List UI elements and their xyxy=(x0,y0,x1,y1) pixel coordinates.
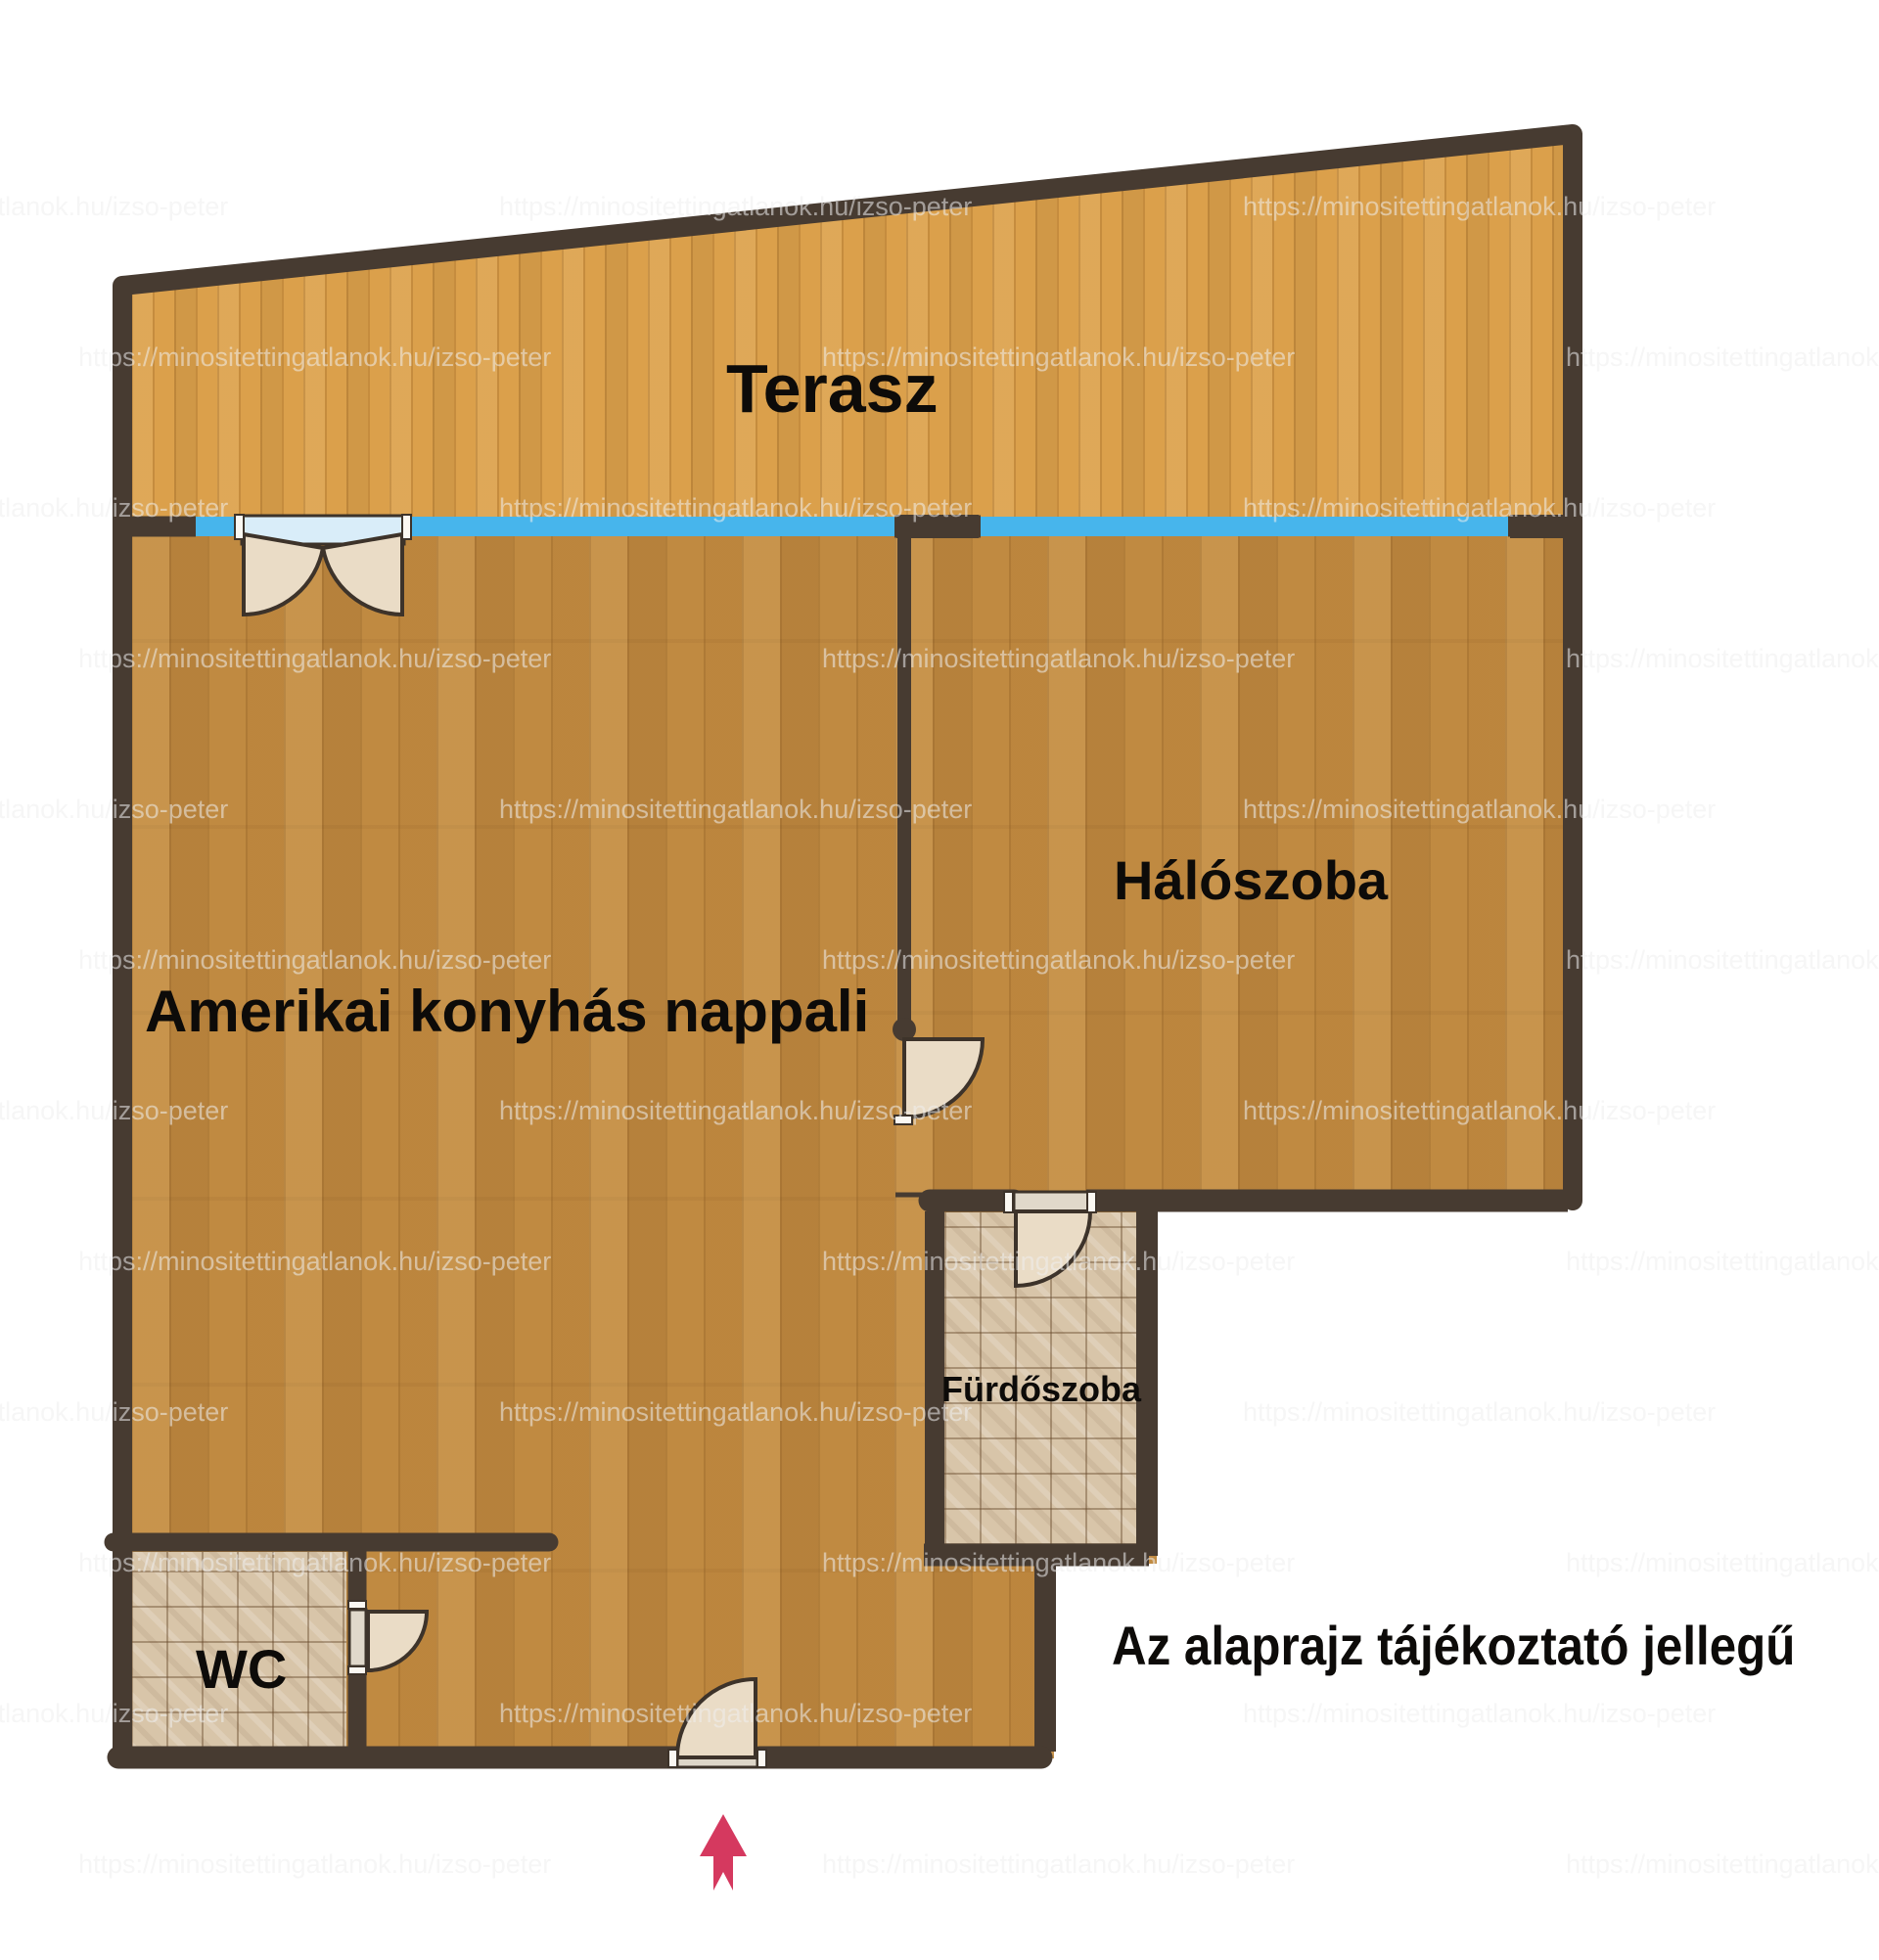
wc-door-symbol xyxy=(348,1601,427,1674)
french-door-left-leaf xyxy=(244,534,323,615)
door-jamb xyxy=(1087,1192,1096,1212)
wc-label: WC xyxy=(196,1642,287,1697)
entrance-arrow-icon xyxy=(700,1814,747,1891)
door-jamb xyxy=(235,515,244,539)
floorplan-canvas: Terasz Amerikai konyhás nappali Hálószob… xyxy=(0,0,1879,1960)
wc-door-leaf xyxy=(368,1612,427,1670)
living-room-label: Amerikai konyhás nappali xyxy=(145,982,869,1041)
bathroom-door-symbol xyxy=(1004,1192,1096,1286)
door-jamb xyxy=(757,1750,766,1767)
terrace-label: Terasz xyxy=(726,354,939,423)
bathroom-door-leaf xyxy=(1016,1211,1090,1286)
door-jamb xyxy=(402,515,411,539)
french-door-right-leaf xyxy=(323,534,402,615)
wc-door-threshold xyxy=(349,1610,366,1666)
french-door-symbol xyxy=(235,515,411,615)
door-jamb xyxy=(348,1666,366,1674)
entrance-door-symbol xyxy=(668,1679,766,1767)
interior-door-leaf xyxy=(904,1039,983,1117)
door-jamb xyxy=(894,1116,912,1124)
door-jamb xyxy=(1004,1192,1013,1212)
entrance-door-leaf xyxy=(677,1679,756,1757)
door-jamb xyxy=(348,1601,366,1609)
disclaimer-note: Az alaprajz tájékoztató jellegű xyxy=(1112,1618,1795,1673)
bedroom-label: Hálószoba xyxy=(1114,853,1388,908)
interior-door-symbol xyxy=(894,1039,983,1124)
bathroom-label: Fürdőszoba xyxy=(941,1372,1141,1407)
door-jamb xyxy=(668,1750,677,1767)
bathroom-door-threshold xyxy=(1014,1192,1088,1211)
